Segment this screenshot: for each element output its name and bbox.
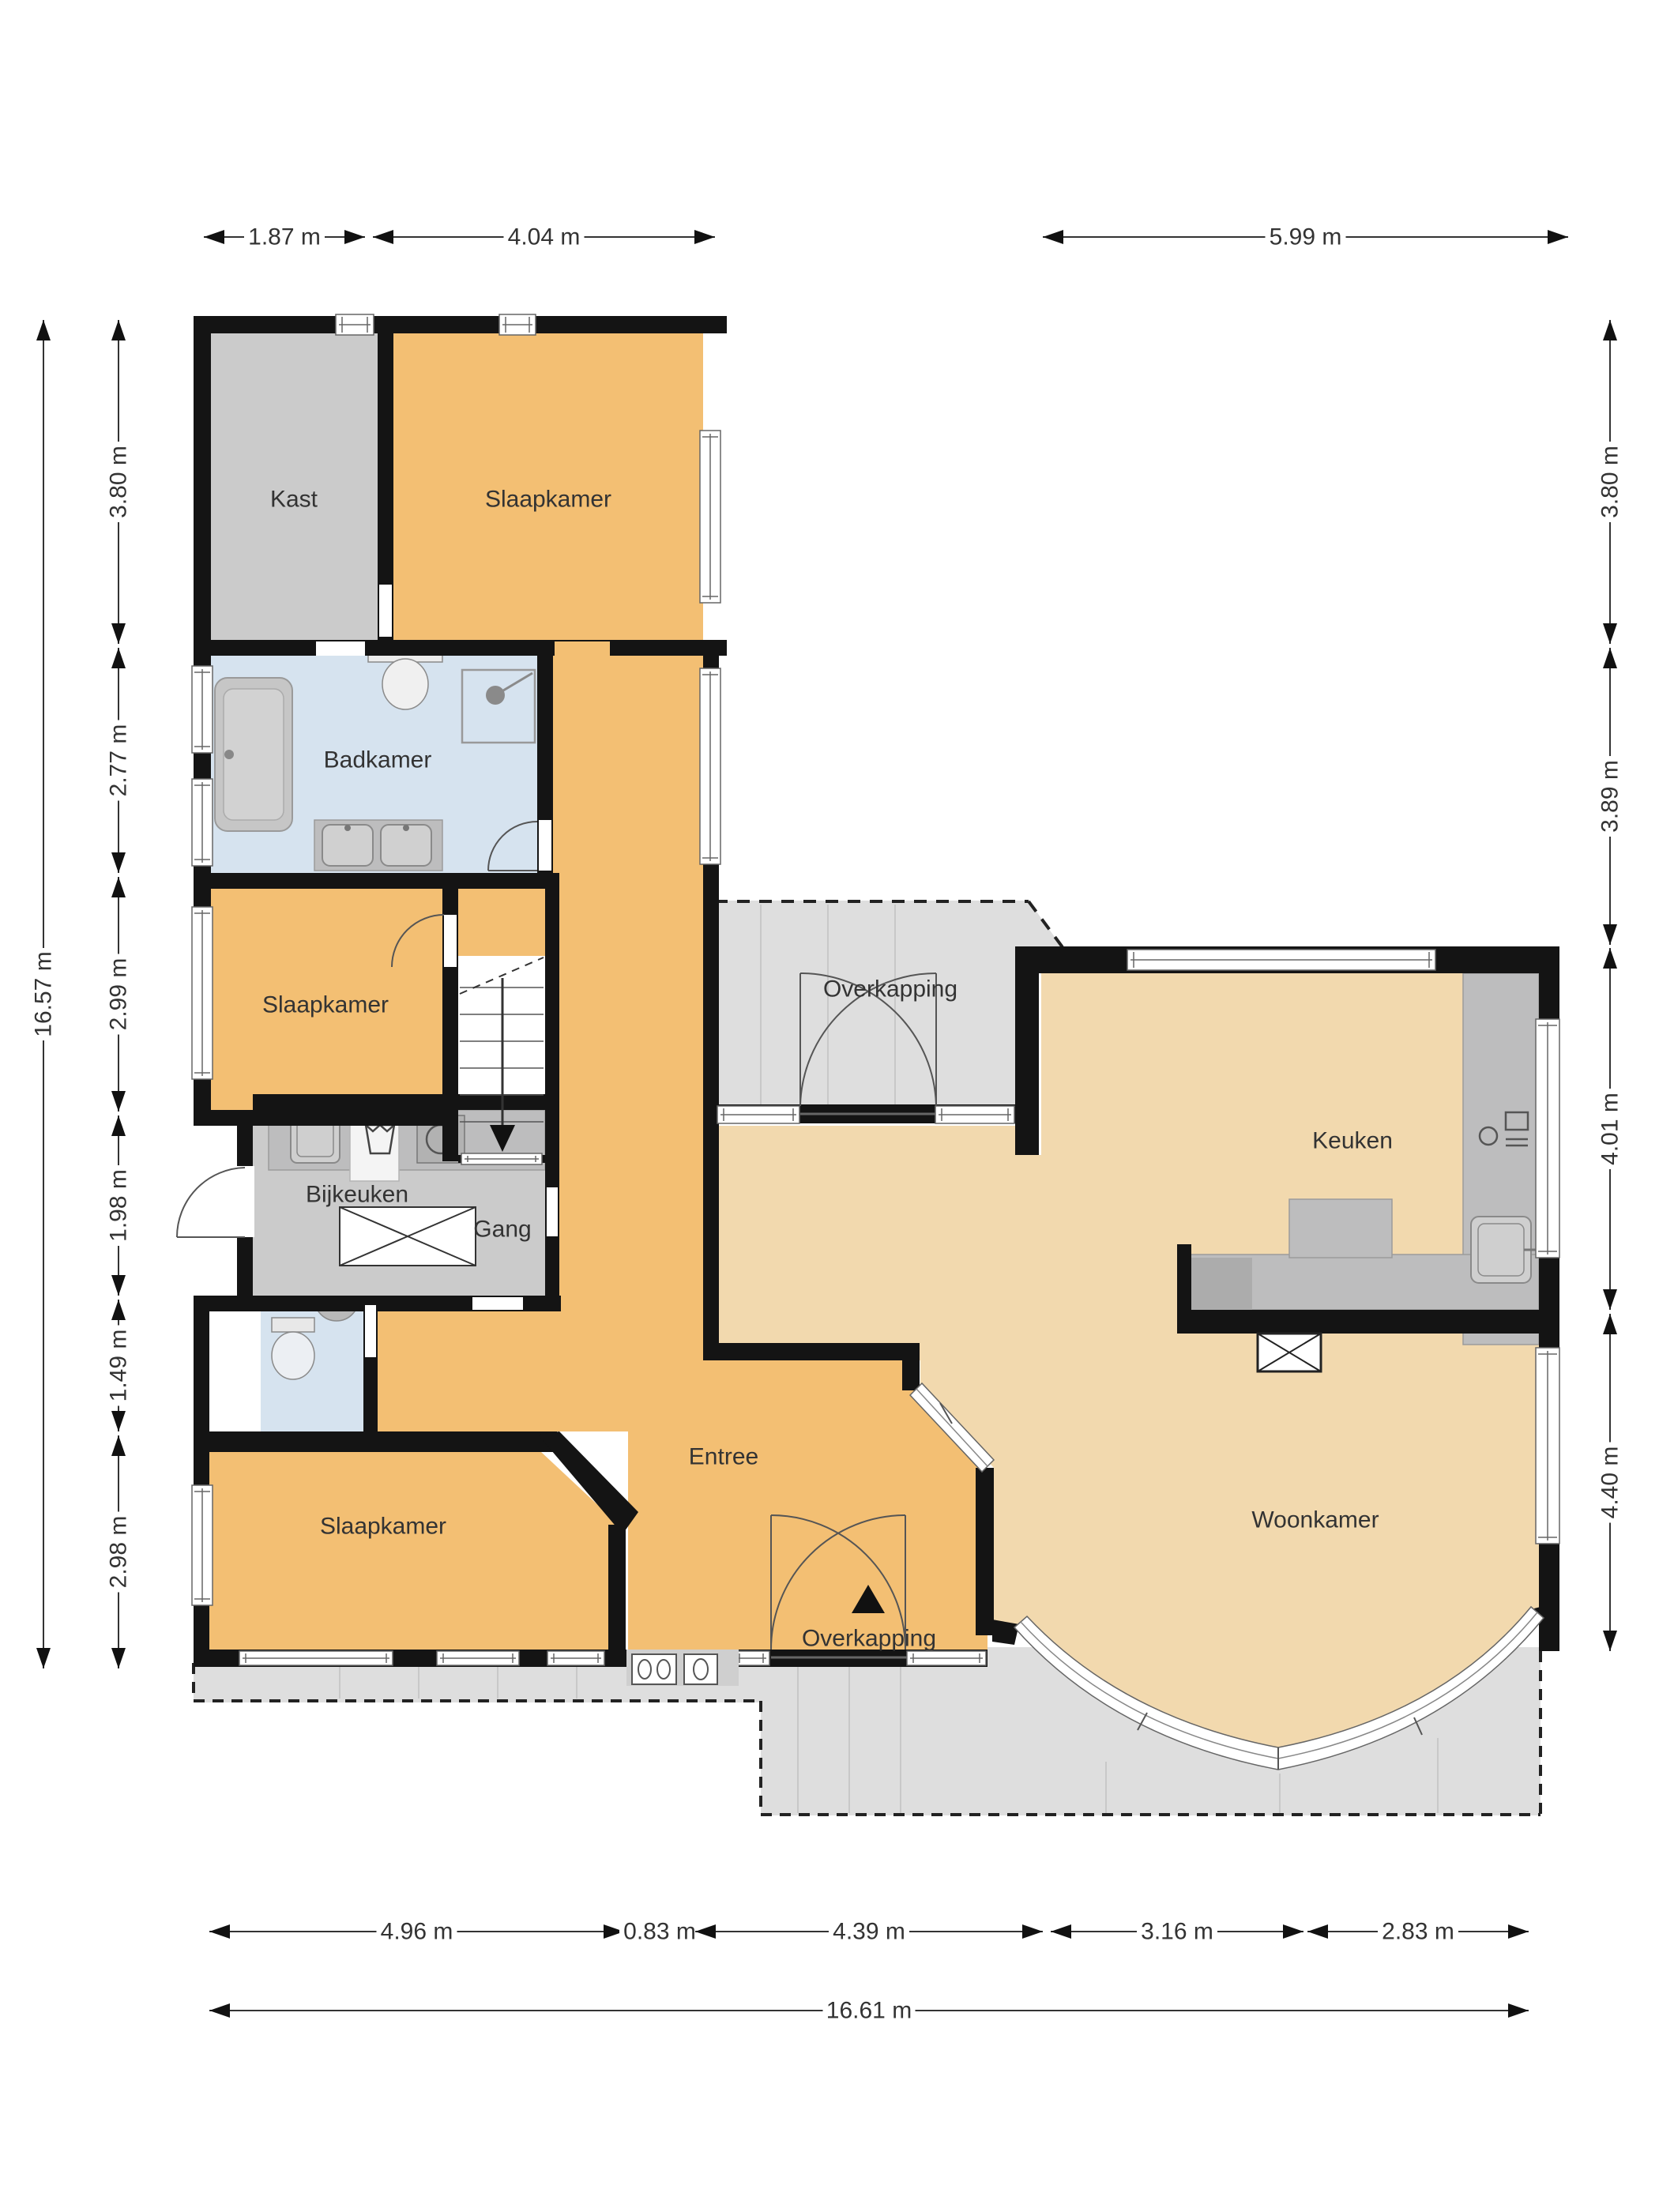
dim-top-kast-labelgroup: 1.87 m (244, 223, 325, 251)
room-label-slaapkamer-1: Slaapkamer (485, 487, 611, 513)
door-gap (316, 641, 365, 656)
dim-left-total-labelgroup: 16.57 m (29, 948, 58, 1040)
dim-top-slaapkamer: 4.04 m (373, 223, 715, 251)
dim-right-389-arrow (1603, 648, 1617, 668)
floorplan-svg: KastSlaapkamerBadkamerSlaapkamerBijkeuke… (0, 0, 1659, 2212)
room-label-entree: Entree (689, 1444, 758, 1470)
door-gap (472, 1297, 523, 1310)
dim-left-380: 3.80 m (104, 320, 133, 644)
room-label-overkapping-zuid: Overkapping (802, 1626, 936, 1652)
dim-right-401-arrow (1603, 948, 1617, 969)
dim-right-380: 3.80 m (1596, 320, 1624, 644)
dim-left-380-labelgroup: 3.80 m (104, 442, 133, 522)
dim-right-440-labelgroup: 4.40 m (1596, 1443, 1624, 1523)
dim-right-401: 4.01 m (1596, 948, 1624, 1310)
dim-top-keuken: 5.99 m (1043, 223, 1568, 251)
wall-segment (194, 1110, 458, 1126)
dim-left-299-labelgroup: 2.99 m (104, 954, 133, 1035)
bath-faucet (224, 750, 234, 759)
wall-segment (194, 1431, 557, 1452)
door-gap (235, 1166, 254, 1237)
dim-left-298-label: 2.98 m (106, 1516, 132, 1589)
room-label-overkapping-noord: Overkapping (823, 976, 957, 1003)
dim-left-277-arrow (111, 852, 126, 873)
dim-bottom-total: 16.61 m (209, 1996, 1529, 2025)
wall-segment (608, 1525, 626, 1650)
dim-bottom-total-labelgroup: 16.61 m (823, 1996, 916, 2025)
dim-left-380-arrow (111, 623, 126, 644)
room-label-badkamer: Badkamer (324, 747, 432, 773)
room-label-keuken: Keuken (1312, 1128, 1393, 1154)
bath-sink-faucet (344, 825, 351, 831)
wall-segment (194, 1296, 209, 1667)
door-gap (444, 915, 457, 967)
dim-left-298: 2.98 m (104, 1435, 133, 1668)
dim-left-277-labelgroup: 2.77 m (104, 720, 133, 801)
dim-bottom-083-labelgroup: 0.83 m (619, 1917, 700, 1946)
dim-right-389-labelgroup: 3.89 m (1596, 756, 1624, 837)
dim-left-149-label: 1.49 m (106, 1330, 132, 1402)
dim-right-380-arrow (1603, 320, 1617, 340)
dim-left-149-labelgroup: 1.49 m (104, 1326, 133, 1406)
dim-left-149-arrow (111, 1300, 126, 1320)
dim-bottom-283: 2.83 m (1307, 1917, 1529, 1946)
dim-right-380-label: 3.80 m (1597, 446, 1623, 518)
bath-sink-faucet (403, 825, 409, 831)
room-label-slaapkamer-3: Slaapkamer (320, 1514, 446, 1540)
dim-bottom-283-arrow (1508, 1924, 1529, 1939)
room-label-gang: Gang (473, 1217, 531, 1243)
kitchen-counter-dark (1185, 1258, 1252, 1310)
dim-left-298-arrow (111, 1435, 126, 1456)
dim-top-kast: 1.87 m (204, 223, 365, 251)
dim-left-198-labelgroup: 1.98 m (104, 1165, 133, 1246)
dim-bottom-439: 4.39 m (695, 1917, 1043, 1946)
dim-top-slaapkamer-labelgroup: 4.04 m (504, 223, 585, 251)
dim-bottom-083: 0.83 m (619, 1917, 700, 1946)
dim-right-380-labelgroup: 3.80 m (1596, 442, 1624, 522)
dim-top-kast-arrow (204, 230, 224, 244)
dim-right-440-arrow (1603, 1314, 1617, 1334)
dim-left-total-arrow (36, 320, 51, 340)
wall-segment (253, 1094, 559, 1110)
dim-bottom-496-arrow (209, 1924, 230, 1939)
dim-right-380-arrow (1603, 623, 1617, 644)
dim-left-299-arrow (111, 877, 126, 897)
dim-right-440: 4.40 m (1596, 1314, 1624, 1651)
dim-bottom-496: 4.96 m (209, 1917, 624, 1946)
door-gap (547, 1187, 558, 1236)
dim-top-keuken-labelgroup: 5.99 m (1266, 223, 1346, 251)
dim-bottom-283-arrow (1307, 1924, 1328, 1939)
dim-right-440-label: 4.40 m (1597, 1446, 1623, 1519)
dim-right-401-label: 4.01 m (1597, 1093, 1623, 1165)
dim-top-kast-label: 1.87 m (248, 224, 321, 250)
dim-right-389-label: 3.89 m (1597, 760, 1623, 833)
dim-right-440-arrow (1603, 1631, 1617, 1651)
wall-segment (194, 640, 727, 656)
room-label-woonkamer: Woonkamer (1251, 1507, 1379, 1533)
dim-left-149: 1.49 m (104, 1300, 133, 1431)
dim-bottom-496-labelgroup: 4.96 m (377, 1917, 457, 1946)
room-label-kast: Kast (270, 487, 318, 513)
dim-top-keuken-label: 5.99 m (1270, 224, 1342, 250)
dim-top-slaapkamer-arrow (373, 230, 393, 244)
dim-left-198-arrow (111, 1115, 126, 1136)
wall-segment (194, 316, 727, 333)
dim-left-total: 16.57 m (29, 320, 58, 1668)
dim-right-401-arrow (1603, 1289, 1617, 1310)
dim-bottom-316-arrow (1283, 1924, 1303, 1939)
dim-left-277: 2.77 m (104, 648, 133, 873)
dim-top-slaapkamer-label: 4.04 m (508, 224, 581, 250)
dim-bottom-316: 3.16 m (1051, 1917, 1303, 1946)
wall-segment (1177, 1244, 1191, 1311)
wall-segment (902, 1343, 920, 1390)
dim-left-total-label: 16.57 m (31, 951, 57, 1036)
wall-segment (703, 1343, 920, 1360)
door-arc (177, 1168, 245, 1237)
dim-left-277-label: 2.77 m (106, 724, 132, 797)
dim-left-198-label: 1.98 m (106, 1169, 132, 1242)
dim-left-149-arrow (111, 1411, 126, 1431)
room-label-bijkeuken: Bijkeuken (306, 1182, 408, 1208)
door-gap (379, 585, 392, 637)
door-gap (555, 641, 610, 656)
dim-bottom-316-label: 3.16 m (1141, 1919, 1213, 1945)
dim-left-299: 2.99 m (104, 877, 133, 1112)
dim-bottom-316-arrow (1051, 1924, 1071, 1939)
dim-bottom-total-label: 16.61 m (826, 1998, 912, 2024)
wall-segment (1015, 946, 1039, 1155)
wall-segment (1177, 1310, 1539, 1334)
dim-left-299-label: 2.99 m (106, 958, 132, 1031)
dim-bottom-496-label: 4.96 m (381, 1919, 453, 1945)
dim-top-slaapkamer-arrow (694, 230, 715, 244)
dim-bottom-283-labelgroup: 2.83 m (1378, 1917, 1458, 1946)
room-floor-corridor (553, 656, 703, 1360)
floorplan-canvas: KastSlaapkamerBadkamerSlaapkamerBijkeuke… (0, 0, 1659, 2212)
dim-left-198: 1.98 m (104, 1115, 133, 1296)
dim-right-389-arrow (1603, 924, 1617, 945)
dim-left-299-arrow (111, 1091, 126, 1112)
dim-right-401-labelgroup: 4.01 m (1596, 1089, 1624, 1169)
dim-left-298-labelgroup: 2.98 m (104, 1512, 133, 1593)
dim-top-keuken-arrow (1548, 230, 1568, 244)
wall-segment (194, 873, 553, 889)
dim-bottom-283-label: 2.83 m (1382, 1919, 1454, 1945)
room-label-slaapkamer-2: Slaapkamer (262, 992, 389, 1018)
wc-tank (272, 1318, 314, 1332)
dim-bottom-083-label: 0.83 m (623, 1919, 696, 1945)
toilet-bowl (382, 659, 428, 709)
dim-left-380-arrow (111, 320, 126, 340)
dim-left-277-arrow (111, 648, 126, 668)
room-floor-corridor-upper (458, 889, 545, 956)
dim-right-389: 3.89 m (1596, 648, 1624, 945)
terrace-north (715, 901, 1063, 1122)
kitchen-peninsula (1289, 1199, 1392, 1258)
dim-left-total-arrow (36, 1648, 51, 1668)
dim-bottom-439-arrow (1022, 1924, 1043, 1939)
room-floor-slaapkamer-3 (209, 1452, 626, 1650)
wc-bowl (272, 1332, 314, 1379)
dim-bottom-439-label: 4.39 m (833, 1919, 905, 1945)
dim-left-298-arrow (111, 1648, 126, 1668)
wall-segment (976, 1468, 994, 1635)
dim-bottom-total-arrow (209, 2003, 230, 2018)
dim-left-198-arrow (111, 1275, 126, 1296)
wall-segment (545, 873, 559, 1161)
dim-top-keuken-arrow (1043, 230, 1063, 244)
dim-bottom-439-labelgroup: 4.39 m (829, 1917, 909, 1946)
kitchen-sink (1471, 1217, 1531, 1283)
door-gap (365, 1305, 376, 1357)
dim-top-kast-arrow (344, 230, 365, 244)
door-gap (539, 820, 551, 871)
dim-left-380-label: 3.80 m (106, 446, 132, 518)
dim-bottom-total-arrow (1508, 2003, 1529, 2018)
dim-bottom-316-labelgroup: 3.16 m (1137, 1917, 1217, 1946)
